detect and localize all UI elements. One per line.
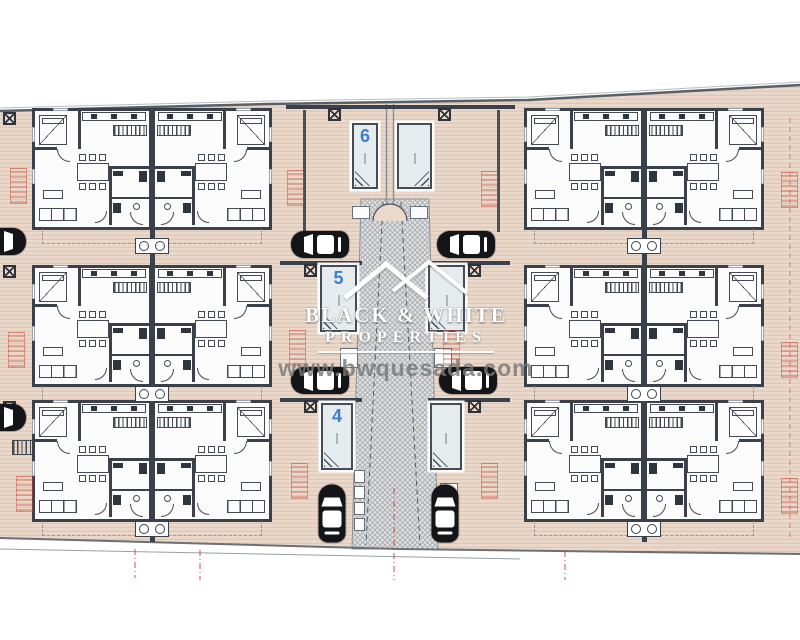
swimming-pool: [397, 123, 432, 189]
swimming-pool: 4: [321, 403, 353, 470]
toilet: [164, 360, 171, 367]
pergola-post-icon: [468, 400, 481, 413]
building-duplex: [32, 108, 272, 230]
pergola-post-icon: [304, 400, 317, 413]
door-arc: [197, 211, 209, 223]
plot-stamp: [781, 478, 798, 514]
sofa: [719, 365, 757, 378]
apartment-unit: [152, 265, 272, 387]
toilet: [133, 495, 140, 502]
dining-table: [195, 320, 227, 338]
dining-table: [687, 163, 719, 181]
apartment-unit: [644, 265, 764, 387]
sofa: [39, 500, 77, 513]
walkway-step: [354, 486, 365, 499]
bed: [531, 115, 559, 145]
walkway-step: [352, 206, 370, 219]
door-arc: [161, 369, 174, 382]
swimming-pool: [428, 265, 465, 332]
toilet: [133, 203, 140, 210]
staircase: [157, 125, 191, 136]
dining-table: [687, 455, 719, 473]
pergola-beam: [280, 261, 362, 265]
dining-table: [195, 455, 227, 473]
plot-stamp: [287, 170, 304, 206]
door-arc: [130, 504, 143, 517]
door-arc: [653, 212, 666, 225]
entry-porch: [627, 386, 661, 402]
door-arc: [197, 368, 209, 380]
door-arc: [622, 504, 635, 517]
pergola-beam: [280, 398, 362, 402]
tv-table: [535, 347, 555, 356]
plot-stamp: [291, 463, 308, 499]
toilet: [625, 360, 632, 367]
toilet: [164, 203, 171, 210]
bed: [531, 272, 559, 302]
sofa: [719, 208, 757, 221]
plot-stamp: [443, 330, 460, 366]
pergola-post-icon: [3, 265, 16, 278]
apartment-unit: [32, 108, 152, 230]
door-arc: [234, 441, 247, 454]
kitchen-counter: [158, 269, 222, 278]
parked-car: [291, 231, 349, 258]
door-arc: [234, 149, 247, 162]
door-arc: [95, 368, 107, 380]
building-duplex: [32, 400, 272, 522]
bed: [531, 407, 559, 437]
staircase: [157, 417, 191, 428]
sofa: [39, 365, 77, 378]
bed: [237, 272, 265, 302]
tv-table: [535, 190, 555, 199]
door-arc: [726, 441, 739, 454]
parked-car: [0, 404, 26, 431]
staircase: [157, 282, 191, 293]
kitchen-counter: [82, 404, 146, 413]
pergola-beam: [286, 105, 515, 109]
plot-stamp: [289, 330, 306, 366]
door-arc: [587, 368, 599, 380]
door-arc: [161, 212, 174, 225]
pergola-post-icon: [3, 112, 16, 125]
tv-table: [43, 347, 63, 356]
kitchen-counter: [574, 269, 638, 278]
parked-car: [291, 367, 349, 394]
bed: [39, 407, 67, 437]
entry-porch: [627, 521, 661, 537]
pool-number: 4: [323, 406, 351, 427]
bed: [39, 115, 67, 145]
pergola-post-icon: [304, 264, 317, 277]
kitchen-counter: [650, 404, 714, 413]
staircase: [605, 417, 639, 428]
plot-stamp: [781, 342, 798, 378]
staircase: [649, 282, 683, 293]
entry-porch: [135, 238, 169, 254]
toilet: [656, 360, 663, 367]
walkway-step: [354, 518, 365, 531]
kitchen-counter: [650, 112, 714, 121]
dining-table: [77, 163, 109, 181]
tv-table: [241, 190, 261, 199]
door-arc: [689, 368, 701, 380]
door-arc: [622, 369, 635, 382]
kitchen-counter: [574, 112, 638, 121]
dining-table: [77, 455, 109, 473]
staircase: [113, 125, 147, 136]
walkway-step: [354, 470, 365, 483]
apartment-unit: [32, 400, 152, 522]
kitchen-counter: [650, 269, 714, 278]
swimming-pool: [430, 403, 462, 470]
apartment-unit: [152, 108, 272, 230]
staircase: [605, 125, 639, 136]
dining-table: [569, 320, 601, 338]
sofa: [227, 365, 265, 378]
parked-car: [318, 484, 345, 542]
bed: [729, 115, 757, 145]
sofa: [719, 500, 757, 513]
building-duplex: [524, 265, 764, 387]
swimming-pool: 6: [352, 123, 378, 189]
sofa: [531, 208, 569, 221]
toilet: [625, 495, 632, 502]
sofa: [531, 365, 569, 378]
walkway-step: [410, 206, 428, 219]
tv-table: [733, 190, 753, 199]
dining-table: [195, 163, 227, 181]
apartment-unit: [32, 265, 152, 387]
walkway-step: [354, 502, 365, 515]
door-arc: [234, 306, 247, 319]
tv-table: [535, 482, 555, 491]
door-arc: [587, 503, 599, 515]
door-arc: [95, 211, 107, 223]
door-arc: [130, 369, 143, 382]
sofa: [531, 500, 569, 513]
door-arc: [726, 149, 739, 162]
pool-number: 6: [354, 126, 376, 147]
dining-table: [77, 320, 109, 338]
tv-table: [241, 347, 261, 356]
sofa: [227, 500, 265, 513]
pool-number: 5: [322, 268, 355, 289]
bed: [237, 115, 265, 145]
plot-stamp: [481, 463, 498, 499]
plot-stamp: [781, 172, 798, 208]
staircase: [113, 417, 147, 428]
kitchen-counter: [82, 269, 146, 278]
plot-stamp: [481, 171, 498, 207]
sofa: [39, 208, 77, 221]
kitchen-counter: [82, 112, 146, 121]
entry-porch: [135, 386, 169, 402]
bed: [39, 272, 67, 302]
door-arc: [549, 149, 562, 162]
toilet: [656, 495, 663, 502]
entry-porch: [627, 238, 661, 254]
dining-table: [569, 163, 601, 181]
parked-car: [0, 228, 26, 255]
tv-table: [733, 347, 753, 356]
door-arc: [653, 369, 666, 382]
apartment-unit: [524, 265, 644, 387]
door-arc: [95, 503, 107, 515]
bed: [729, 272, 757, 302]
door-arc: [57, 441, 70, 454]
toilet: [625, 203, 632, 210]
bed: [237, 407, 265, 437]
building-duplex: [32, 265, 272, 387]
apartment-unit: [524, 400, 644, 522]
kitchen-counter: [574, 404, 638, 413]
door-arc: [549, 306, 562, 319]
pergola-post-icon: [328, 108, 341, 121]
toilet: [133, 360, 140, 367]
door-arc: [653, 504, 666, 517]
door-arc: [161, 504, 174, 517]
plot-stamp: [10, 168, 27, 204]
bed: [729, 407, 757, 437]
swimming-pool: 5: [320, 265, 357, 332]
toilet: [164, 495, 171, 502]
door-arc: [130, 212, 143, 225]
door-arc: [587, 211, 599, 223]
door-arc: [622, 212, 635, 225]
staircase: [649, 125, 683, 136]
building-duplex: [524, 108, 764, 230]
tv-table: [241, 482, 261, 491]
tv-table: [43, 190, 63, 199]
plot-stamp: [8, 332, 25, 368]
entry-porch: [135, 521, 169, 537]
kitchen-counter: [158, 112, 222, 121]
apartment-unit: [644, 108, 764, 230]
apartment-unit: [644, 400, 764, 522]
tv-table: [733, 482, 753, 491]
door-arc: [689, 211, 701, 223]
door-arc: [726, 306, 739, 319]
door-arc: [197, 503, 209, 515]
sofa: [227, 208, 265, 221]
staircase: [113, 282, 147, 293]
pergola-post-icon: [468, 264, 481, 277]
dining-table: [569, 455, 601, 473]
parked-car: [432, 484, 459, 542]
tv-table: [43, 482, 63, 491]
floor-plan-screenshot: BLACK & WHITE PROPERTIES www.bwquesada.c…: [0, 0, 800, 640]
staircase: [649, 417, 683, 428]
door-arc: [549, 441, 562, 454]
staircase: [605, 282, 639, 293]
parked-car: [437, 231, 495, 258]
apartment-unit: [524, 108, 644, 230]
dining-table: [687, 320, 719, 338]
kitchen-counter: [158, 404, 222, 413]
toilet: [656, 203, 663, 210]
parked-car: [439, 367, 497, 394]
pergola-post-icon: [438, 108, 451, 121]
plot-stamp: [16, 476, 33, 512]
walkway-step: [340, 348, 358, 368]
door-arc: [57, 306, 70, 319]
door-arc: [689, 503, 701, 515]
apartment-unit: [152, 400, 272, 522]
building-duplex: [524, 400, 764, 522]
door-arc: [57, 149, 70, 162]
